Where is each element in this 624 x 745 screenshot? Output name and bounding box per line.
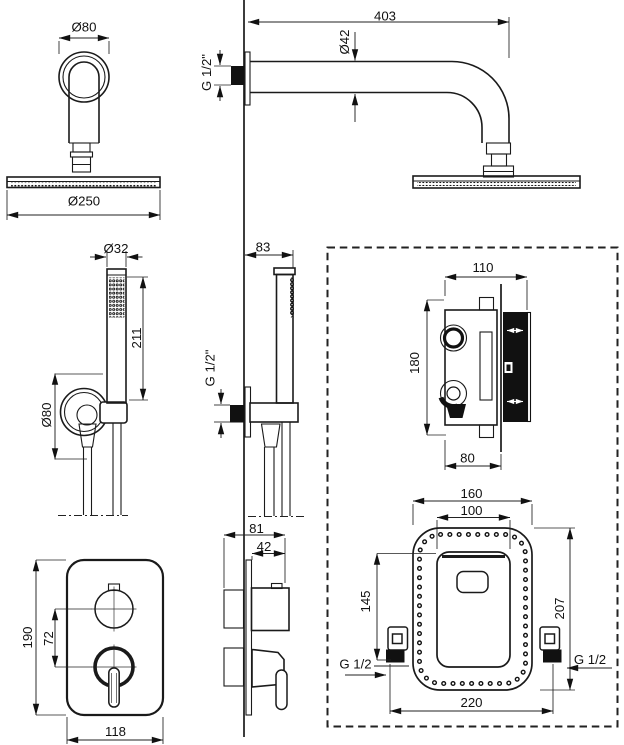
technical-drawing-page: Ø80 Ø250 403 Ø42 <box>0 0 624 745</box>
spray-face <box>109 278 125 318</box>
dim-valve-width: 110 <box>445 260 527 310</box>
view-mixer-valve-side: 110 180 80 <box>407 260 530 470</box>
spray-dots-side-column <box>290 278 294 315</box>
view-hand-shower-front: Ø32 211 Ø80 <box>39 241 148 515</box>
dim-holder-depth: 83 <box>245 240 293 268</box>
dim-plate-depth-label: 81 <box>249 521 264 536</box>
dim-holder-thread: G 1/2" <box>203 349 230 438</box>
dim-handle-length: 211 <box>127 277 148 400</box>
thread-connector <box>231 66 244 85</box>
dim-valve-depth-label: 80 <box>460 451 475 466</box>
box-window <box>457 572 488 593</box>
shower-set-technical-drawing: Ø80 Ø250 403 Ø42 <box>0 0 624 745</box>
dim-valve-height-label: 180 <box>407 352 422 374</box>
dim-box-width-label: 160 <box>460 486 482 501</box>
dim-box-total-width-label: 220 <box>460 695 482 710</box>
view-mounting-box-front: 160 100 145 207 220 G 1/2 <box>339 486 612 714</box>
dim-overhead-disc-label: Ø250 <box>68 194 100 209</box>
dim-arm-length: 403 <box>248 9 509 58</box>
dim-wall-plate-label: Ø80 <box>39 403 54 428</box>
nozzle-band <box>11 183 156 187</box>
dim-arm-thread-label: G 1/2" <box>199 54 214 91</box>
dim-box-body-height: 207 <box>534 528 575 690</box>
box-inner-plate <box>437 552 510 667</box>
dim-knob-depth-label: 42 <box>257 539 272 554</box>
dim-handle-diameter: Ø32 <box>90 241 143 267</box>
dim-plate-height-label: 190 <box>20 626 35 648</box>
dim-arm-length-label: 403 <box>374 9 396 24</box>
dim-arm-tube-diameter: Ø42 <box>337 30 355 122</box>
dim-box-height-label: 207 <box>552 597 567 619</box>
label-thread-right: G 1/2 <box>567 652 612 668</box>
dim-plate-width-label: 118 <box>105 724 126 739</box>
dim-arm-diameter-label: Ø42 <box>337 30 352 55</box>
view-overhead-shower-top: Ø80 Ø250 <box>7 20 160 220</box>
view-trim-plate-side: 81 42 <box>224 521 289 715</box>
dim-knob-depth: 42 <box>252 539 285 560</box>
thread-left-label: G 1/2 <box>339 657 371 672</box>
mounting-box-side-profile <box>503 312 531 422</box>
arm-inner-edge <box>250 93 482 144</box>
dim-plate-total-depth: 81 <box>224 521 285 588</box>
holder-thread-connector <box>230 405 244 423</box>
nozzle-band-side <box>417 182 576 186</box>
lever-handle <box>109 668 119 707</box>
trim-plate-side-profile <box>246 560 252 715</box>
left-connector <box>386 627 408 663</box>
hose-nut-side <box>262 424 281 447</box>
dim-valve-depth: 80 <box>445 440 501 470</box>
dim-arm-thread: G 1/2" <box>199 50 231 101</box>
dim-handle-length-label: 211 <box>129 327 144 348</box>
dim-holder-thread-label: G 1/2" <box>203 349 218 386</box>
dim-head-diameter: Ø250 <box>7 190 160 220</box>
view-trim-plate-front: 190 72 118 <box>20 560 163 744</box>
dim-box-inner-height-label: 145 <box>358 590 373 612</box>
handle-holder <box>100 402 127 423</box>
right-connector <box>540 627 562 663</box>
dim-wall-plate-diameter: Ø80 <box>39 374 103 460</box>
lever-handle-side <box>276 670 287 710</box>
dim-overhead-flange-label: Ø80 <box>72 20 97 35</box>
dim-plate-width: 118 <box>67 717 163 744</box>
holder-bracket-side <box>250 403 298 422</box>
thermostat-knob-side <box>252 588 290 631</box>
dim-flange-diameter: Ø80 <box>59 20 109 54</box>
dim-valve-height: 180 <box>407 300 446 435</box>
view-shower-arm-side: 403 Ø42 G 1/2" <box>199 9 580 188</box>
dim-holder-depth-label: 83 <box>256 240 271 255</box>
thread-right-label: G 1/2 <box>574 652 606 667</box>
dim-box-inner-width-label: 100 <box>460 503 482 518</box>
dim-valve-width-label: 110 <box>472 260 493 275</box>
dim-handle-diameter-label: Ø32 <box>104 241 129 256</box>
dim-knob-spacing-label: 72 <box>41 631 56 646</box>
wall-flange <box>245 52 250 105</box>
